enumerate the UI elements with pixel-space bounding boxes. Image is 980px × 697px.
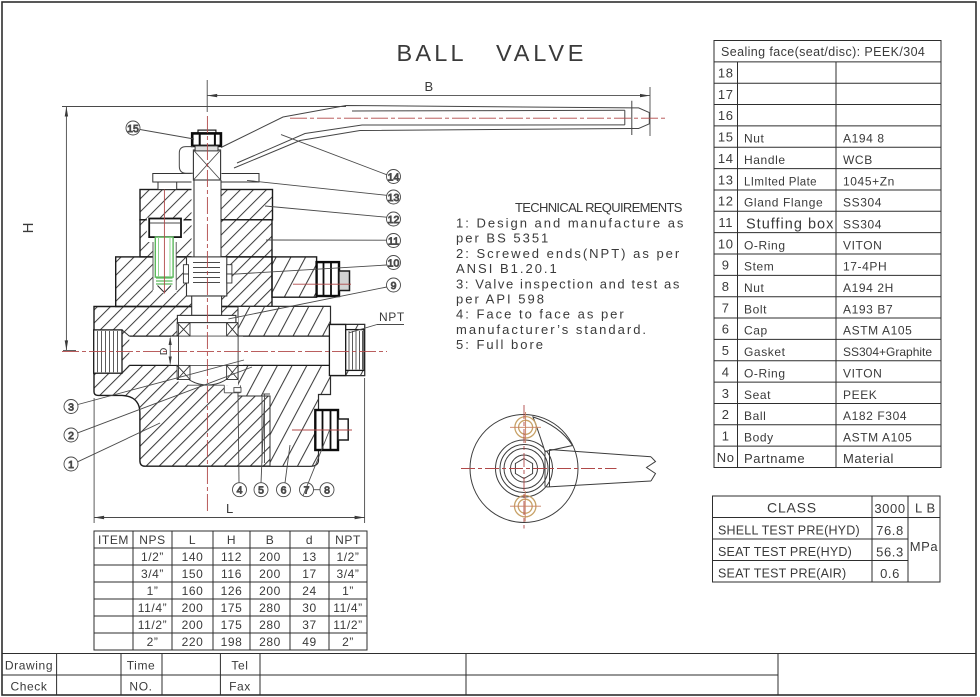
- svg-text:B: B: [425, 79, 434, 94]
- svg-text:11/4”: 11/4”: [138, 601, 167, 615]
- svg-text:3000: 3000: [874, 501, 905, 516]
- svg-text:MPa: MPa: [910, 539, 939, 554]
- svg-text:L B: L B: [915, 501, 936, 516]
- svg-text:17: 17: [718, 87, 734, 102]
- svg-text:76.8: 76.8: [876, 523, 904, 538]
- svg-text:18: 18: [718, 66, 734, 81]
- svg-text:5: Full bore: 5: Full bore: [456, 337, 545, 352]
- svg-text:6: 6: [281, 485, 287, 497]
- svg-text:15: 15: [127, 123, 139, 135]
- svg-text:NO.: NO.: [129, 680, 152, 694]
- svg-text:ANSI B1.20.1: ANSI B1.20.1: [456, 261, 559, 276]
- svg-text:220: 220: [182, 635, 204, 649]
- svg-text:140: 140: [182, 550, 204, 564]
- svg-text:ASTM A105: ASTM A105: [843, 431, 912, 445]
- svg-text:2: 2: [722, 407, 730, 422]
- svg-text:4: 4: [722, 364, 730, 379]
- svg-text:8: 8: [722, 279, 730, 294]
- svg-text:LImIted Plate: LImIted Plate: [744, 176, 817, 188]
- svg-text:CLASS: CLASS: [767, 500, 817, 516]
- svg-text:O-Ring: O-Ring: [744, 366, 786, 380]
- svg-text:H: H: [227, 533, 236, 547]
- svg-text:9: 9: [722, 258, 730, 273]
- svg-text:1: 1: [68, 459, 74, 471]
- svg-text:H: H: [20, 223, 37, 234]
- svg-text:175: 175: [221, 601, 243, 615]
- svg-text:15: 15: [718, 130, 734, 145]
- svg-text:1045+Zn: 1045+Zn: [843, 174, 895, 188]
- svg-text:TECHNICAL REQUIREMENTS: TECHNICAL REQUIREMENTS: [515, 200, 683, 215]
- svg-text:200: 200: [182, 618, 204, 632]
- svg-text:2”: 2”: [147, 635, 159, 649]
- svg-text:A194 2H: A194 2H: [843, 281, 894, 295]
- svg-text:Material: Material: [843, 451, 894, 466]
- svg-text:ASTM A105: ASTM A105: [843, 324, 912, 338]
- svg-text:Gland Flange: Gland Flange: [744, 196, 823, 210]
- svg-text:1: 1: [722, 429, 730, 444]
- svg-text:10: 10: [388, 257, 400, 269]
- svg-text:198: 198: [221, 635, 243, 649]
- svg-text:24: 24: [302, 584, 317, 598]
- svg-text:11: 11: [718, 215, 733, 230]
- svg-text:7: 7: [304, 485, 310, 497]
- svg-text:160: 160: [182, 584, 204, 598]
- svg-text:2”: 2”: [342, 635, 354, 649]
- svg-text:NPS: NPS: [139, 533, 165, 547]
- svg-text:280: 280: [259, 601, 281, 615]
- svg-text:D: D: [158, 347, 170, 355]
- svg-text:12: 12: [388, 214, 400, 226]
- svg-text:L: L: [226, 501, 234, 516]
- svg-text:2: 2: [68, 430, 74, 442]
- svg-text:SHELL TEST PRE(HYD): SHELL TEST PRE(HYD): [718, 524, 860, 538]
- svg-text:0.6: 0.6: [880, 566, 900, 581]
- svg-text:11/4”: 11/4”: [333, 601, 362, 615]
- svg-text:13: 13: [718, 172, 734, 187]
- svg-text:SEAT TEST PRE(AIR): SEAT TEST PRE(AIR): [718, 567, 846, 581]
- svg-text:280: 280: [259, 635, 281, 649]
- svg-text:12: 12: [718, 194, 734, 209]
- svg-text:13: 13: [302, 550, 317, 564]
- svg-text:3: Valve inspection and test a: 3: Valve inspection and test as: [456, 276, 681, 291]
- svg-text:3: 3: [68, 401, 74, 413]
- svg-text:1: Design and manufacture as: 1: Design and manufacture as: [456, 216, 685, 231]
- svg-text:9: 9: [391, 280, 397, 292]
- svg-text:SEAT TEST PRE(HYD): SEAT TEST PRE(HYD): [718, 545, 852, 559]
- svg-text:VITON: VITON: [843, 366, 882, 380]
- svg-text:14: 14: [388, 171, 400, 183]
- svg-text:112: 112: [221, 550, 242, 564]
- svg-text:116: 116: [221, 567, 242, 581]
- svg-text:Stem: Stem: [744, 260, 774, 274]
- svg-text:ITEM: ITEM: [98, 533, 129, 547]
- svg-text:17: 17: [302, 567, 317, 581]
- svg-text:6: 6: [722, 322, 730, 337]
- svg-text:280: 280: [259, 618, 281, 632]
- svg-text:Handle: Handle: [744, 153, 786, 167]
- svg-text:Fax: Fax: [229, 680, 251, 694]
- svg-text:Cap: Cap: [744, 324, 768, 338]
- svg-text:Ball: Ball: [744, 409, 766, 423]
- svg-text:A193 B7: A193 B7: [843, 302, 893, 316]
- svg-text:11: 11: [388, 235, 399, 247]
- svg-text:Time: Time: [127, 659, 156, 673]
- svg-text:200: 200: [259, 584, 281, 598]
- svg-text:Tel: Tel: [231, 659, 248, 673]
- svg-text:4: Face to face as per: 4: Face to face as per: [456, 307, 626, 322]
- svg-text:5: 5: [722, 343, 730, 358]
- svg-text:Stuffing box: Stuffing box: [746, 217, 834, 233]
- svg-text:Nut: Nut: [744, 132, 765, 146]
- svg-text:Drawing: Drawing: [5, 659, 53, 673]
- svg-text:SS304: SS304: [843, 196, 882, 210]
- svg-text:30: 30: [302, 601, 317, 615]
- svg-text:7: 7: [722, 300, 730, 315]
- svg-text:2: Screwed ends(NPT) as per: 2: Screwed ends(NPT) as per: [456, 246, 681, 261]
- svg-text:No: No: [717, 450, 735, 465]
- svg-text:BALL: BALL: [397, 40, 467, 66]
- svg-text:B: B: [266, 533, 275, 547]
- svg-text:150: 150: [182, 567, 204, 581]
- svg-text:14: 14: [718, 151, 734, 166]
- svg-text:Partname: Partname: [744, 451, 805, 466]
- svg-text:1”: 1”: [342, 584, 354, 598]
- svg-text:11/2”: 11/2”: [138, 618, 167, 632]
- svg-text:NPT: NPT: [335, 533, 361, 547]
- svg-text:Seat: Seat: [744, 388, 771, 402]
- svg-text:1/2”: 1/2”: [336, 550, 359, 564]
- svg-text:per BS 5351: per BS 5351: [456, 231, 550, 246]
- svg-text:8: 8: [324, 485, 330, 497]
- svg-text:200: 200: [182, 601, 204, 615]
- svg-text:VALVE: VALVE: [496, 40, 587, 66]
- svg-text:Body: Body: [744, 431, 774, 445]
- svg-text:VITON: VITON: [843, 238, 882, 252]
- svg-text:4: 4: [237, 485, 243, 497]
- svg-text:A194 8: A194 8: [843, 132, 885, 146]
- svg-text:per API 598: per API 598: [456, 292, 546, 307]
- svg-text:Gasket: Gasket: [744, 345, 786, 359]
- svg-text:16: 16: [718, 108, 734, 123]
- svg-text:11/2”: 11/2”: [333, 618, 362, 632]
- svg-text:O-Ring: O-Ring: [744, 238, 786, 252]
- svg-text:49: 49: [302, 635, 317, 649]
- svg-text:Bolt: Bolt: [744, 302, 767, 316]
- svg-text:56.3: 56.3: [876, 545, 904, 560]
- svg-text:WCB: WCB: [843, 153, 873, 167]
- svg-text:37: 37: [302, 618, 317, 632]
- svg-text:175: 175: [221, 618, 243, 632]
- svg-text:1”: 1”: [147, 584, 159, 598]
- svg-text:SS304+Graphite: SS304+Graphite: [843, 345, 932, 359]
- svg-text:SS304: SS304: [843, 218, 882, 232]
- svg-text:L: L: [189, 533, 196, 547]
- svg-text:3/4”: 3/4”: [336, 567, 359, 581]
- svg-text:NPT: NPT: [379, 310, 405, 324]
- svg-text:A182 F304: A182 F304: [843, 409, 907, 423]
- svg-text:1/2”: 1/2”: [141, 550, 164, 564]
- svg-text:d: d: [306, 533, 313, 547]
- svg-text:PEEK: PEEK: [843, 388, 877, 402]
- svg-text:3: 3: [722, 386, 730, 401]
- svg-text:200: 200: [259, 550, 281, 564]
- svg-text:Sealing face(seat/disc): PEEK/: Sealing face(seat/disc): PEEK/304: [721, 45, 925, 59]
- svg-text:126: 126: [221, 584, 243, 598]
- svg-text:10: 10: [718, 236, 734, 251]
- svg-text:3/4”: 3/4”: [141, 567, 164, 581]
- svg-text:Nut: Nut: [744, 281, 765, 295]
- svg-text:200: 200: [259, 567, 281, 581]
- svg-text:13: 13: [388, 192, 400, 204]
- svg-text:manufacturer’s standard.: manufacturer’s standard.: [456, 322, 648, 337]
- svg-text:Check: Check: [10, 680, 47, 694]
- svg-text:17-4PH: 17-4PH: [843, 260, 887, 274]
- svg-text:5: 5: [258, 485, 264, 497]
